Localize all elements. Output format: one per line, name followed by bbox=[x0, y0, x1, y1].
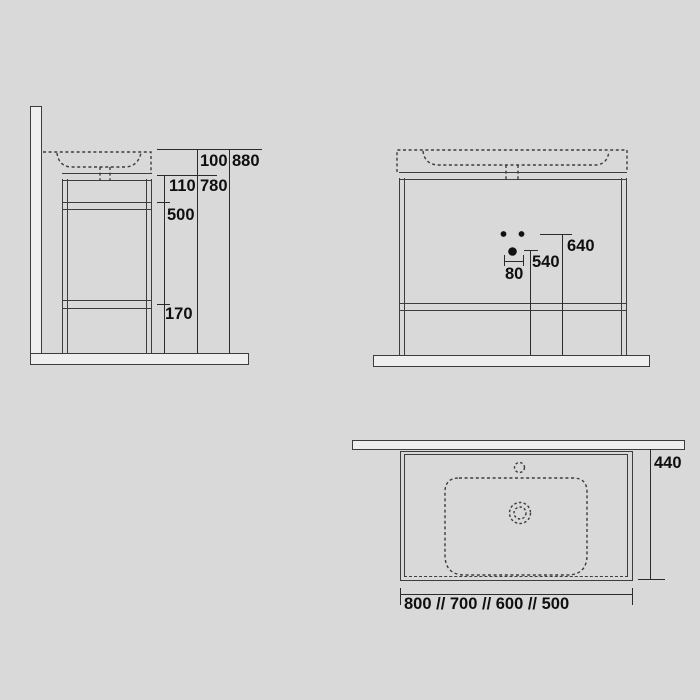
basin-bowl-profile-front bbox=[423, 151, 609, 165]
inlet-hole-icon-right bbox=[519, 231, 525, 237]
basin-dashed-outline-side bbox=[43, 152, 151, 173]
outlet-hole-icon bbox=[508, 247, 517, 256]
dashed-geometry-overlay bbox=[0, 0, 700, 700]
faucet-hole-icon bbox=[515, 463, 525, 473]
basin-bowl-profile-side bbox=[57, 153, 141, 167]
inlet-hole-icon-left bbox=[501, 231, 507, 237]
drain-icon-outer bbox=[510, 503, 531, 524]
basin-dashed-outline-front bbox=[397, 150, 627, 172]
drain-icon-inner bbox=[514, 507, 526, 519]
bowl-outline-top bbox=[445, 478, 587, 575]
drain-pipe-front bbox=[506, 165, 518, 181]
drain-pipe-side bbox=[100, 167, 110, 180]
technical-drawing-canvas: 100 880 110 780 500 170 640 540 80 bbox=[0, 0, 700, 700]
